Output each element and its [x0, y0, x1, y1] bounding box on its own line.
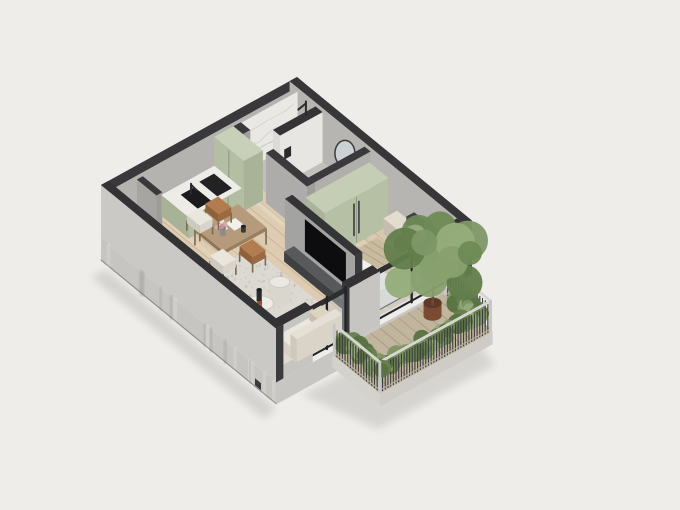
canvas-background [0, 0, 680, 510]
apartment-floorplan-3d-render [0, 0, 680, 510]
decor-bottle [257, 288, 262, 302]
coffee-cup [241, 225, 246, 233]
